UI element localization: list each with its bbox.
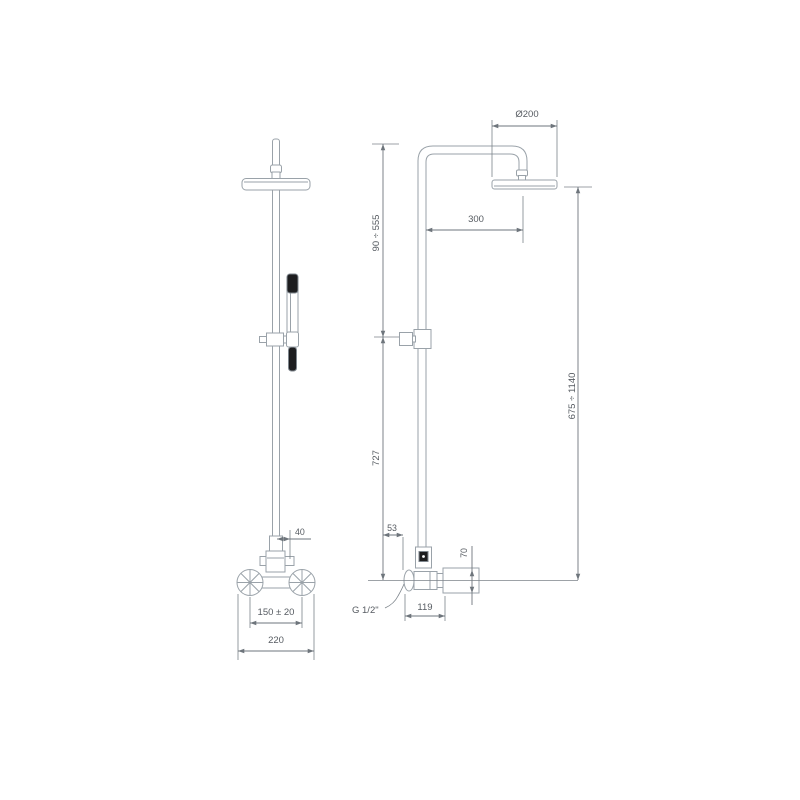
wall-union-right [289, 570, 315, 596]
dim-label-300: 300 [468, 214, 484, 225]
front-slider-bracket [260, 332, 299, 347]
wall-union-left [237, 570, 263, 596]
dim-label-d200: Ø200 [515, 109, 538, 120]
side-shower-head [492, 180, 557, 189]
side-slider-body [414, 330, 431, 349]
set-screw-center [422, 555, 425, 558]
front-mixer-valve [237, 551, 315, 596]
front-head-connector-lower [272, 172, 280, 179]
dim-label-53: 53 [387, 523, 397, 533]
valve-left-tab [260, 557, 266, 566]
side-view: Ø200 300 90 ÷ 555 727 675 ÷ 1140 53 [352, 109, 592, 621]
dimension-overall-width: 220 [238, 594, 314, 660]
dimension-valve-depth: 119 [405, 594, 445, 621]
thread-callout: G 1/2" [352, 584, 404, 616]
front-view: 40 150 ± 20 220 [237, 139, 315, 660]
dimension-inlet-spacing: 150 ± 20 [250, 597, 302, 628]
dim-label-g12: G 1/2" [352, 605, 379, 616]
dimension-left-chain: 90 ÷ 555 727 [371, 144, 399, 580]
side-tube-outer [418, 146, 527, 548]
side-slider-bracket [400, 330, 432, 349]
hand-shower-holder [287, 332, 299, 347]
front-hand-shower [287, 274, 298, 371]
hand-shower-handle [289, 347, 297, 371]
dim-label-727: 727 [371, 450, 382, 466]
valve-body [266, 551, 285, 572]
dim-label-70: 70 [459, 548, 469, 558]
side-bottom-fitting [416, 547, 432, 568]
leader-line [385, 584, 404, 608]
dimension-overall-height: 675 ÷ 1140 [564, 187, 592, 580]
hand-shower-body [287, 290, 298, 334]
dimension-slider-offset: 53 [383, 523, 403, 570]
dim-label-90-555: 90 ÷ 555 [371, 215, 382, 252]
front-riser-pipe [273, 189, 280, 553]
hand-shower-head [287, 274, 298, 293]
front-riser-collar [270, 536, 283, 551]
dim-label-150: 150 ± 20 [258, 607, 295, 618]
dimension-head-diameter: Ø200 [492, 109, 557, 177]
front-shower-head [242, 179, 310, 191]
dim-label-119: 119 [417, 602, 432, 613]
technical-drawing-page: 40 150 ± 20 220 [0, 0, 800, 800]
dimension-arm-reach: 300 [426, 196, 523, 243]
dim-label-675-1140: 675 ÷ 1140 [567, 373, 578, 420]
side-slider-knob [400, 333, 413, 346]
slider-body [267, 333, 284, 346]
shower-column-drawing: 40 150 ± 20 220 [0, 0, 800, 800]
front-top-tube [273, 139, 280, 167]
dim-label-220: 220 [268, 635, 284, 646]
dim-label-40: 40 [295, 527, 305, 537]
diverter-knob [285, 557, 294, 566]
